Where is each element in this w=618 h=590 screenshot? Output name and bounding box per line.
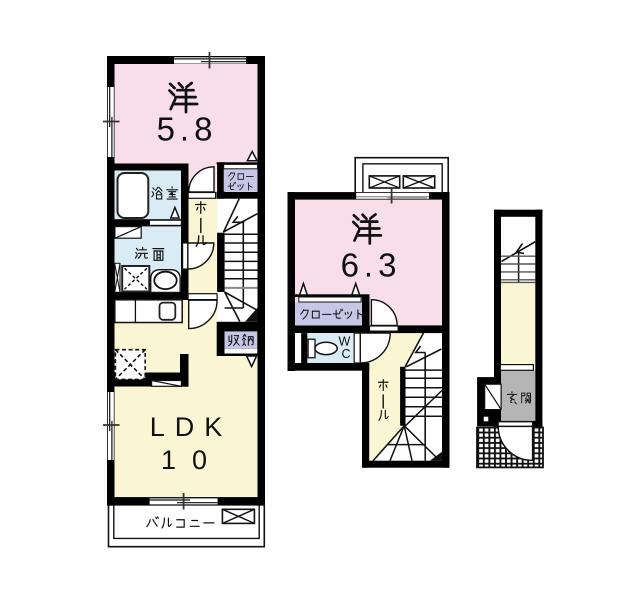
svg-text:10: 10 [161,445,223,475]
svg-text:6.3: 6.3 [341,247,402,284]
svg-text:C: C [342,347,351,361]
svg-text:LDK: LDK [150,412,233,442]
svg-text:5.8: 5.8 [157,111,218,148]
